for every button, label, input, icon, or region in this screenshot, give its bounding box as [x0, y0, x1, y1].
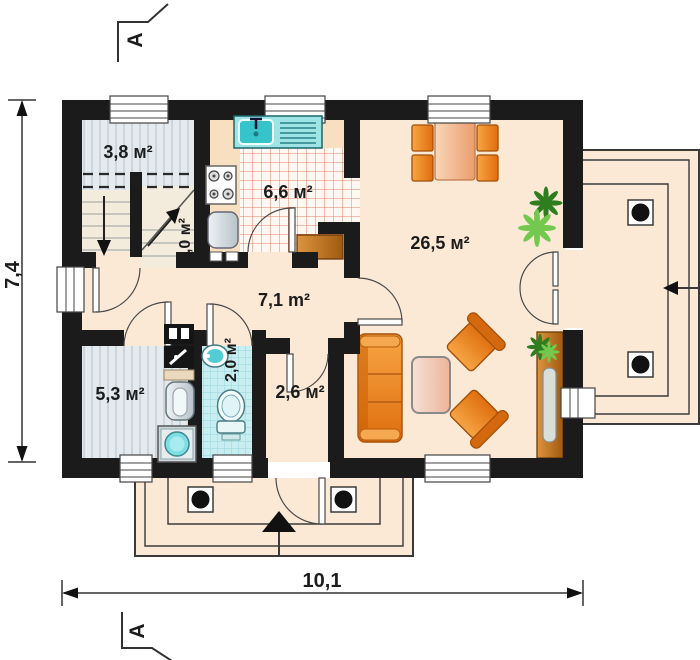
- window-living-bottom: [425, 455, 490, 482]
- dining-table: [435, 118, 475, 180]
- room-label-stairs-flight: 3,0 м²: [177, 218, 194, 262]
- boiler: [164, 346, 194, 380]
- room-label-utility: 5,3 м²: [95, 384, 144, 404]
- room-label-bathroom: 2,0 м²: [223, 338, 240, 382]
- room-label-hall: 7,1 m²: [258, 290, 310, 310]
- window-living-top: [428, 96, 490, 123]
- terrace: [583, 150, 700, 424]
- coffee-table: [412, 357, 450, 413]
- room-label-corridor: 2,6 м²: [275, 382, 324, 402]
- section-marker-bottom: A: [122, 612, 172, 660]
- window-living-right: [561, 388, 595, 418]
- water-heater: [166, 382, 194, 420]
- dining-chair: [412, 125, 433, 151]
- porch: [135, 478, 413, 556]
- floor-plan-canvas: A A 3,8 м² 3,0 м² 6,6 м² 26,5 м² 7,1 m² …: [0, 0, 700, 660]
- stove: [206, 166, 236, 204]
- window-staircase: [110, 96, 168, 123]
- window-utility: [120, 455, 152, 482]
- room-label-kitchen: 6,6 м²: [263, 182, 312, 202]
- electrical-panel: [164, 324, 194, 344]
- porch-column: [188, 487, 213, 512]
- window-bathroom: [213, 455, 252, 482]
- washing-machine: [158, 426, 196, 462]
- section-marker-top: A: [118, 4, 168, 62]
- toilet: [217, 390, 245, 440]
- dimension-height-label: 7,4: [2, 260, 24, 289]
- sofa: [358, 334, 402, 442]
- terrace-column: [628, 200, 653, 225]
- dimension-width-label: 10,1: [303, 570, 342, 592]
- dining-chair: [477, 125, 498, 151]
- dining-set: [412, 118, 498, 181]
- porch-column: [331, 487, 356, 512]
- room-label-living: 26,5 м²: [410, 233, 469, 253]
- terrace-column: [628, 352, 653, 377]
- dining-chair: [412, 155, 433, 181]
- dining-chair: [477, 155, 498, 181]
- kitchen-sink: [234, 116, 322, 148]
- floor-plan: A A 3,8 м² 3,0 м² 6,6 м² 26,5 м² 7,1 m² …: [0, 0, 700, 660]
- section-label-bottom: A: [126, 623, 149, 638]
- section-label-top: A: [124, 32, 147, 47]
- window-hall-left: [57, 267, 84, 312]
- room-label-staircase: 3,8 м²: [103, 142, 152, 162]
